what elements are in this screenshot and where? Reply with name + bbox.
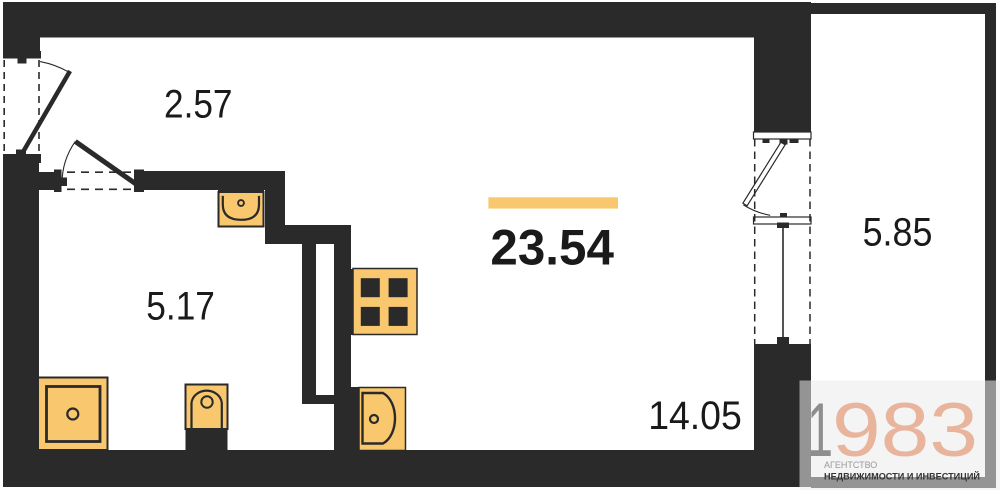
svg-text:НЕДВИЖИМОСТИ И ИНВЕСТИЦИЙ: НЕДВИЖИМОСТИ И ИНВЕСТИЦИЙ — [824, 471, 980, 483]
svg-text:5.85: 5.85 — [863, 210, 933, 254]
svg-text:14.05: 14.05 — [648, 394, 742, 438]
svg-text:23.54: 23.54 — [490, 220, 614, 276]
svg-text:5.17: 5.17 — [146, 285, 215, 329]
svg-text:2.57: 2.57 — [164, 83, 233, 127]
svg-text:АГЕНТСТВО: АГЕНТСТВО — [824, 460, 877, 470]
